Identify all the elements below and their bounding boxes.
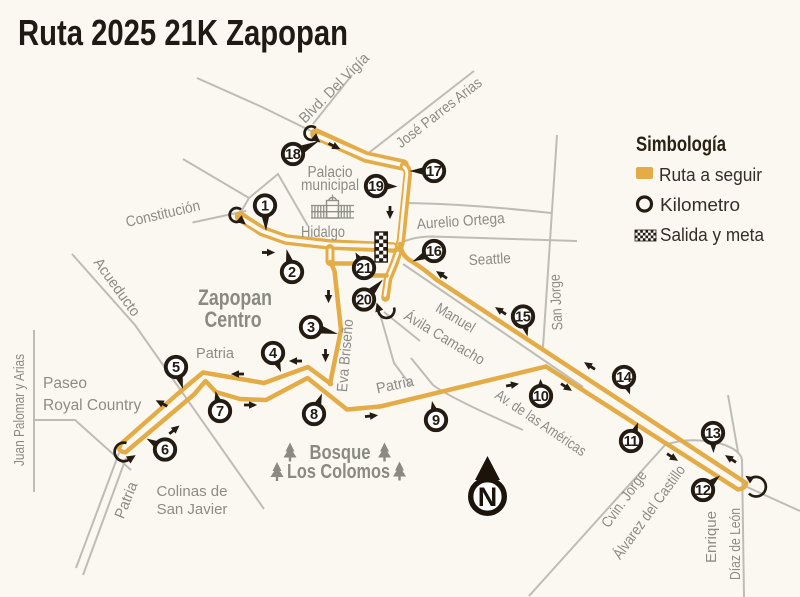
svg-text:16: 16 [426,244,442,260]
svg-text:5: 5 [172,360,180,376]
svg-text:Enrique: Enrique [703,511,720,563]
svg-text:1: 1 [261,199,269,215]
svg-text:Seattle: Seattle [468,250,511,269]
svg-text:Hidalgo: Hidalgo [301,224,345,241]
svg-text:Ruta a seguir: Ruta a seguir [659,165,762,185]
svg-text:Salida y meta: Salida y meta [660,225,765,245]
svg-text:Simbología: Simbología [636,133,726,156]
svg-text:7: 7 [216,404,224,420]
svg-text:Colinas de: Colinas de [157,483,228,500]
svg-text:11: 11 [624,434,639,450]
svg-text:6: 6 [161,443,169,459]
svg-text:10: 10 [533,389,549,405]
svg-text:21: 21 [356,261,372,277]
svg-text:9: 9 [432,413,440,429]
svg-text:15: 15 [515,310,531,326]
svg-text:4: 4 [269,346,278,362]
svg-text:Kilometro: Kilometro [660,195,740,215]
svg-text:Juan Palomar y Arias: Juan Palomar y Arias [11,354,28,466]
svg-text:Royal Country: Royal Country [43,397,141,414]
svg-text:8: 8 [310,407,318,423]
svg-text:3: 3 [307,320,315,336]
svg-text:13: 13 [705,426,721,442]
svg-text:Los Colomos: Los Colomos [287,461,390,483]
svg-text:18: 18 [285,147,301,163]
svg-text:12: 12 [695,483,711,499]
svg-text:N: N [478,482,498,512]
svg-text:19: 19 [368,179,384,195]
svg-text:Ruta 2025 21K Zapopan: Ruta 2025 21K Zapopan [18,12,348,53]
svg-text:Centro: Centro [205,307,262,332]
svg-text:Paseo: Paseo [43,375,87,392]
svg-text:San Jorge: San Jorge [547,274,567,331]
svg-text:municipal: municipal [301,177,359,194]
svg-text:2: 2 [288,265,296,281]
svg-text:17: 17 [426,164,442,180]
svg-text:Díaz de León: Díaz de León [727,508,744,580]
svg-text:Patria: Patria [196,345,235,362]
svg-text:San Javier: San Javier [157,501,228,518]
svg-text:20: 20 [356,293,372,309]
svg-text:14: 14 [616,370,633,386]
